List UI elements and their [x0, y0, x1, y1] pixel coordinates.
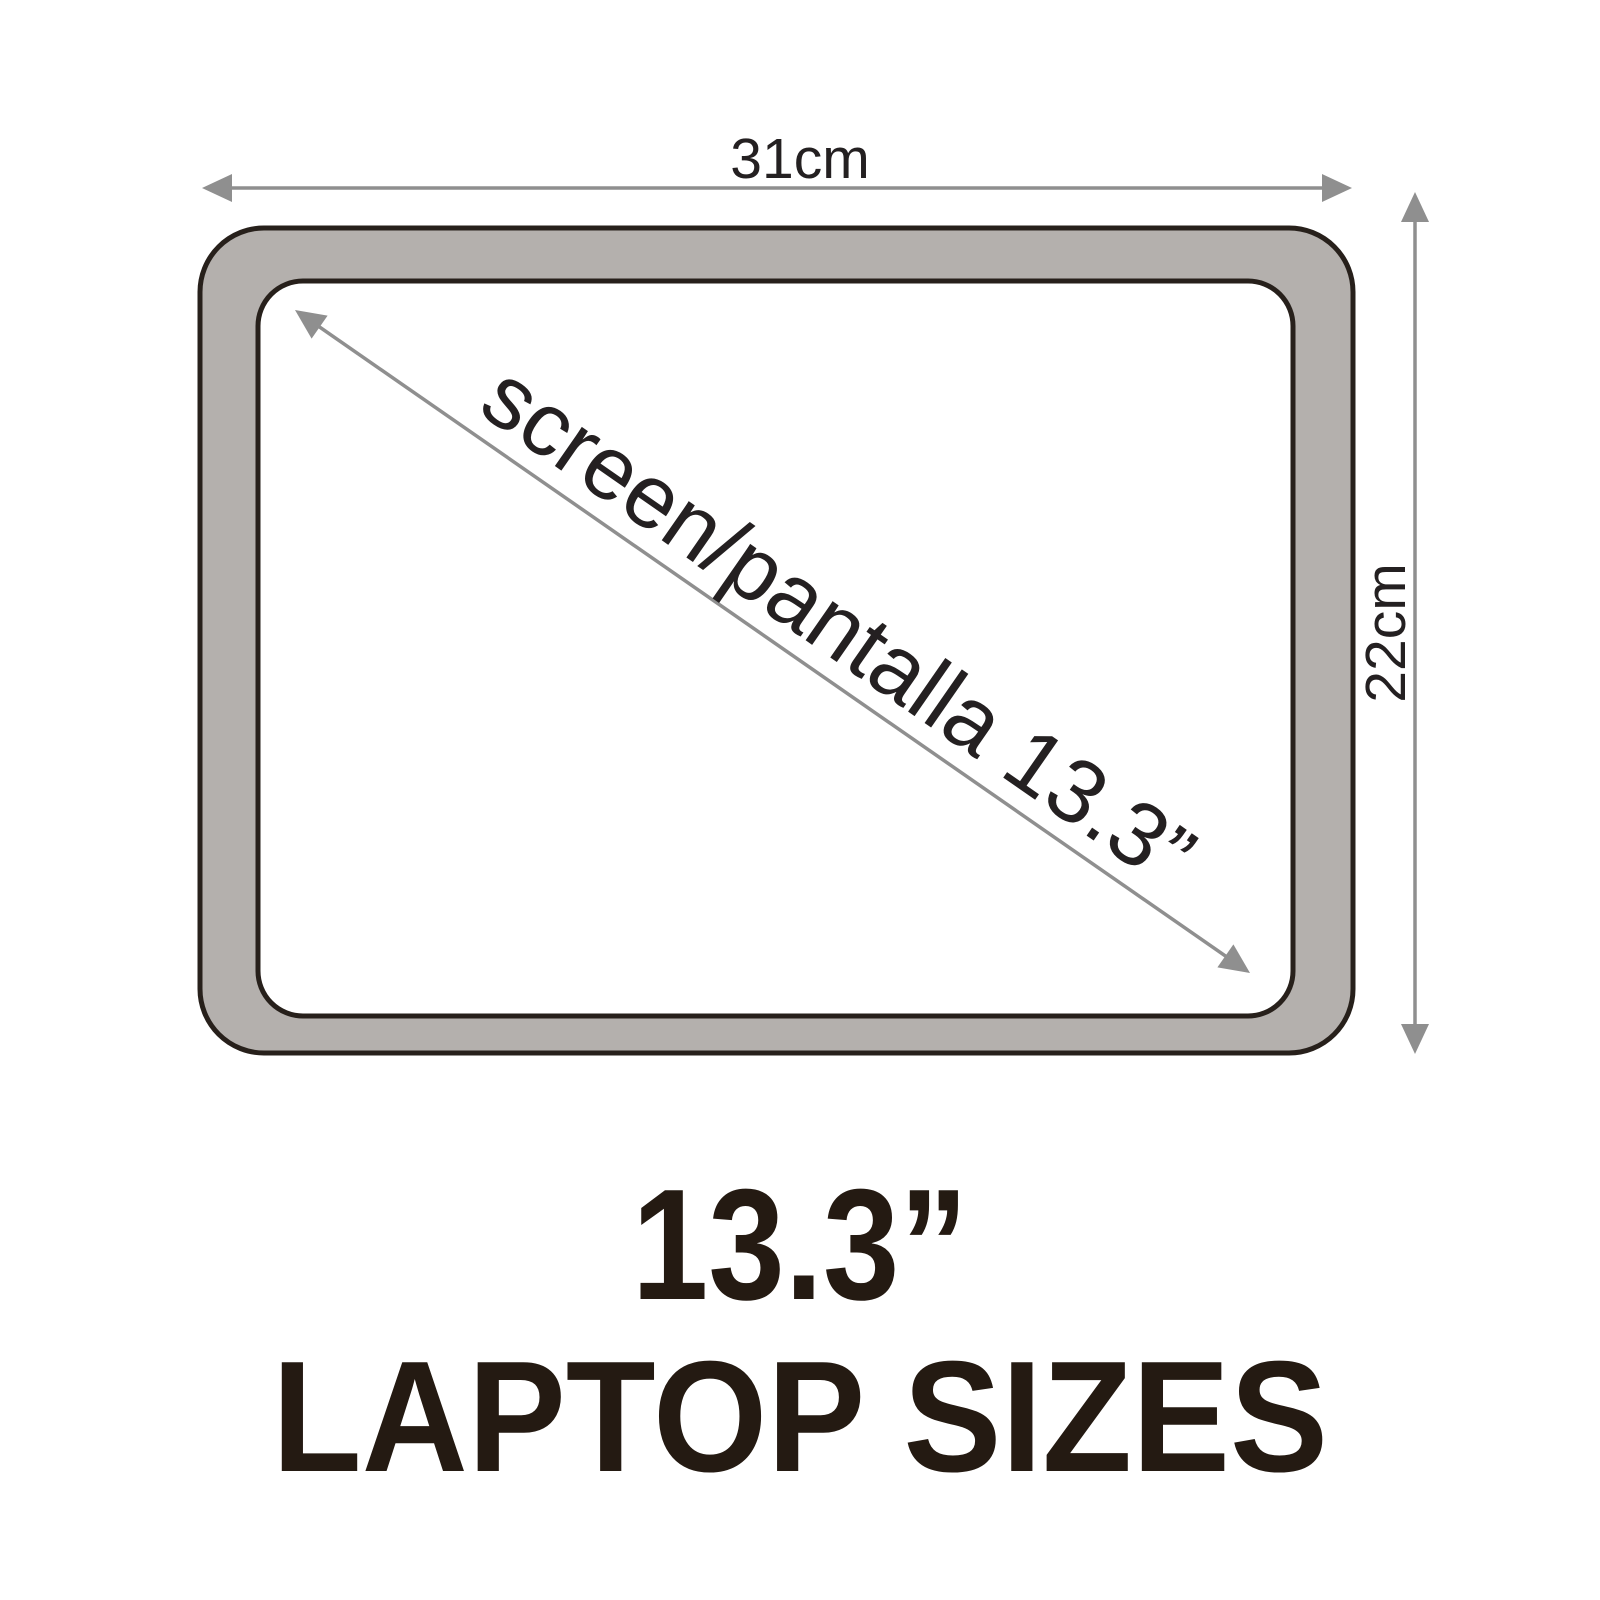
width-arrow-left-head-icon	[202, 174, 232, 202]
height-dimension-label: 22cm	[1354, 563, 1418, 702]
diagram-title: LAPTOP SIZES	[56, 1338, 1544, 1496]
height-arrow-top-head-icon	[1401, 192, 1429, 222]
screen-size-caption: 13.3”	[104, 1166, 1496, 1324]
height-arrow-bottom-head-icon	[1401, 1024, 1429, 1054]
width-arrow-right-head-icon	[1322, 174, 1352, 202]
width-dimension-label: 31cm	[730, 127, 869, 191]
laptop-size-diagram: 31cm 22cm screen/pantalla 13.3” 13.3” LA…	[0, 0, 1600, 1600]
